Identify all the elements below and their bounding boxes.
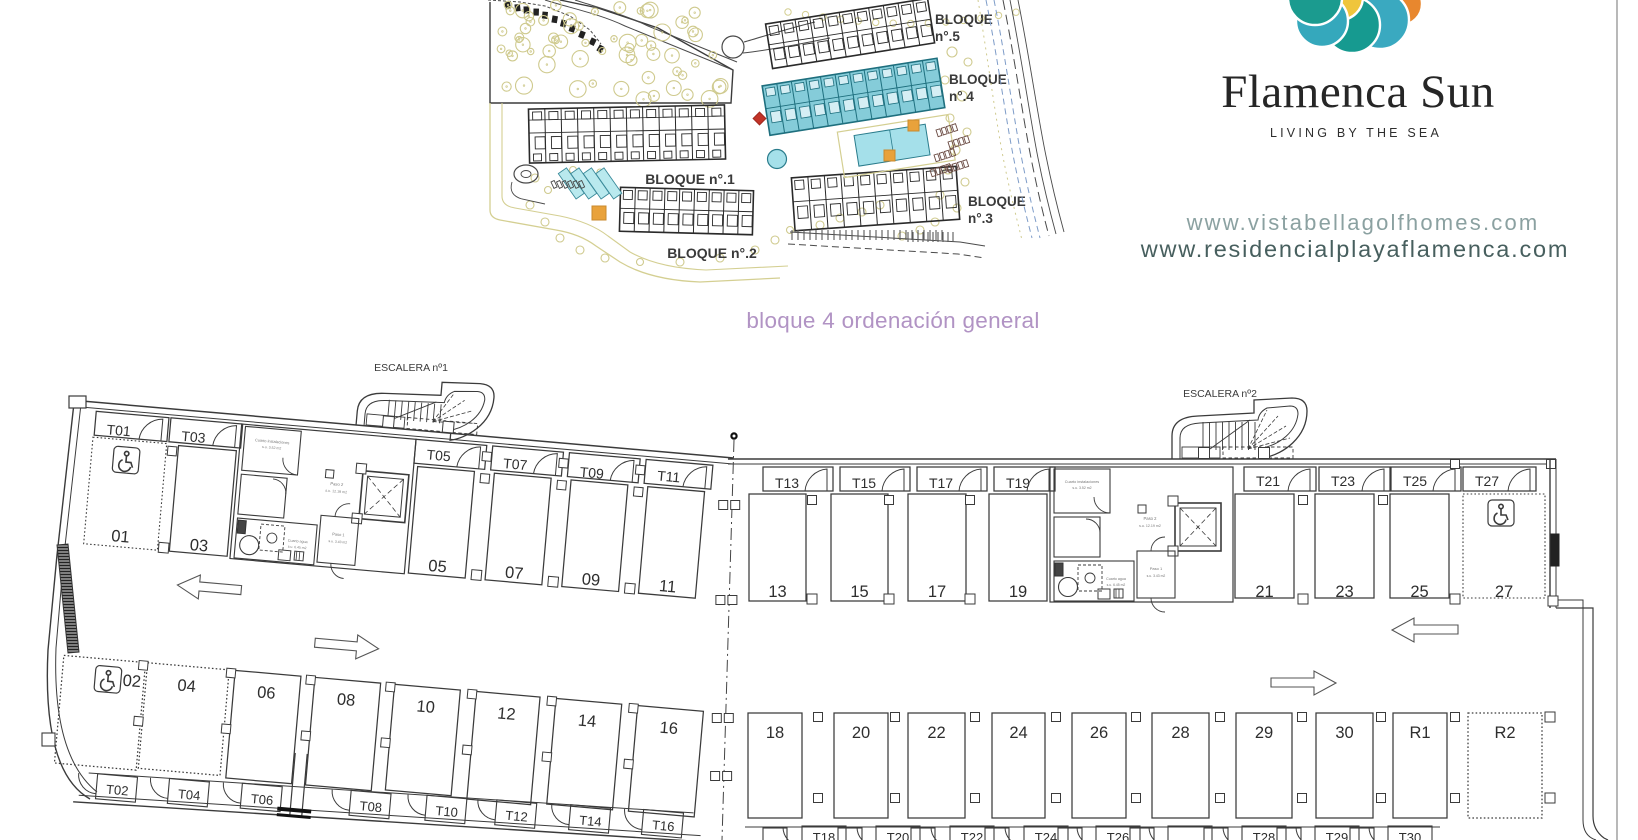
svg-text:BLOQUE: BLOQUE [968, 194, 1026, 209]
svg-text:12: 12 [496, 704, 516, 724]
svg-text:20: 20 [852, 724, 870, 742]
svg-text:bloque 4 ordenación general: bloque 4 ordenación general [746, 308, 1039, 333]
svg-text:T08: T08 [359, 798, 383, 815]
svg-text:Cuarto instalaciones: Cuarto instalaciones [1065, 480, 1100, 484]
svg-text:Paso 2: Paso 2 [1143, 516, 1157, 521]
svg-text:01: 01 [110, 527, 130, 547]
svg-text:T01: T01 [106, 421, 132, 439]
svg-text:T14: T14 [579, 813, 603, 830]
svg-text:07: 07 [504, 564, 524, 584]
svg-text:ESCALERA nº2: ESCALERA nº2 [1183, 388, 1257, 400]
svg-text:n°.5: n°.5 [935, 29, 960, 44]
svg-text:06: 06 [256, 683, 276, 703]
svg-text:T30: T30 [1399, 830, 1421, 840]
svg-text:09: 09 [581, 570, 601, 590]
svg-text:10: 10 [416, 697, 436, 717]
svg-text:T15: T15 [852, 475, 876, 491]
svg-text:T16: T16 [651, 817, 675, 834]
svg-text:n°.3: n°.3 [968, 211, 993, 226]
svg-text:13: 13 [768, 583, 786, 601]
svg-text:T25: T25 [1403, 473, 1427, 489]
svg-text:16: 16 [659, 719, 679, 739]
svg-text:T11: T11 [657, 467, 682, 485]
svg-text:T20: T20 [887, 830, 909, 840]
svg-text:T18: T18 [813, 830, 835, 840]
svg-text:26: 26 [1090, 724, 1108, 742]
svg-text:22: 22 [927, 724, 945, 742]
svg-text:T24: T24 [1035, 830, 1057, 840]
svg-text:T09: T09 [579, 464, 605, 482]
svg-text:04: 04 [177, 676, 197, 696]
svg-text:Cuarto agua: Cuarto agua [1106, 577, 1126, 581]
svg-text:s.u. 6.45 m2: s.u. 6.45 m2 [1107, 583, 1126, 587]
svg-text:R1: R1 [1409, 724, 1430, 742]
svg-text:T04: T04 [177, 786, 201, 803]
svg-text:17: 17 [928, 583, 946, 601]
svg-text:T29: T29 [1326, 830, 1348, 840]
svg-text:R2: R2 [1494, 724, 1515, 742]
svg-text:T02: T02 [106, 782, 130, 799]
svg-text:BLOQUE: BLOQUE [935, 12, 993, 27]
svg-text:T13: T13 [775, 475, 799, 491]
svg-text:T26: T26 [1107, 830, 1129, 840]
svg-text:T21: T21 [1256, 473, 1280, 489]
svg-text:15: 15 [850, 583, 868, 601]
svg-text:21: 21 [1255, 583, 1273, 601]
svg-text:T19: T19 [1006, 475, 1030, 491]
svg-text:05: 05 [428, 557, 448, 577]
svg-text:n°.4: n°.4 [949, 89, 974, 104]
svg-text:03: 03 [189, 536, 209, 556]
svg-text:s.u. 12.19 m2: s.u. 12.19 m2 [1139, 524, 1161, 528]
svg-text:08: 08 [336, 690, 356, 710]
svg-text:25: 25 [1410, 583, 1428, 601]
svg-text:T23: T23 [1331, 473, 1355, 489]
svg-text:T28: T28 [1253, 830, 1275, 840]
svg-text:11: 11 [658, 577, 677, 596]
svg-text:30: 30 [1335, 724, 1353, 742]
svg-text:BLOQUE: BLOQUE [949, 72, 1007, 87]
svg-text:T10: T10 [435, 803, 459, 820]
svg-text:ESCALERA nº1: ESCALERA nº1 [374, 362, 448, 374]
svg-text:T05: T05 [426, 446, 452, 464]
svg-text:LIVING BY THE SEA: LIVING BY THE SEA [1270, 126, 1442, 140]
svg-text:BLOQUE n°.1: BLOQUE n°.1 [645, 171, 735, 187]
svg-text:www.vistabellagolfhomes.com: www.vistabellagolfhomes.com [1186, 210, 1540, 235]
svg-text:T17: T17 [929, 475, 953, 491]
svg-text:18: 18 [766, 724, 784, 742]
svg-text:T06: T06 [250, 791, 274, 808]
svg-text:27: 27 [1495, 583, 1513, 601]
svg-text:28: 28 [1171, 724, 1189, 742]
svg-text:29: 29 [1255, 724, 1273, 742]
svg-text:T27: T27 [1475, 473, 1499, 489]
svg-text:19: 19 [1009, 583, 1027, 601]
svg-text:T22: T22 [961, 830, 983, 840]
svg-text:T07: T07 [503, 455, 529, 473]
svg-text:14: 14 [577, 711, 597, 731]
svg-text:Flamenca Sun: Flamenca Sun [1221, 66, 1495, 118]
svg-text:s.u. 3.43 m2: s.u. 3.43 m2 [1147, 574, 1166, 578]
svg-text:www.residencialplayaflamenca.c: www.residencialplayaflamenca.com [1140, 236, 1570, 262]
svg-text:T12: T12 [505, 808, 529, 825]
svg-text:Paso 1: Paso 1 [1150, 566, 1163, 571]
svg-text:23: 23 [1335, 583, 1353, 601]
svg-text:s.u. 3.52 m2: s.u. 3.52 m2 [1072, 486, 1091, 490]
svg-text:02: 02 [122, 672, 142, 692]
svg-text:BLOQUE n°.2: BLOQUE n°.2 [667, 245, 757, 261]
svg-text:T03: T03 [181, 428, 207, 446]
svg-text:24: 24 [1009, 724, 1027, 742]
